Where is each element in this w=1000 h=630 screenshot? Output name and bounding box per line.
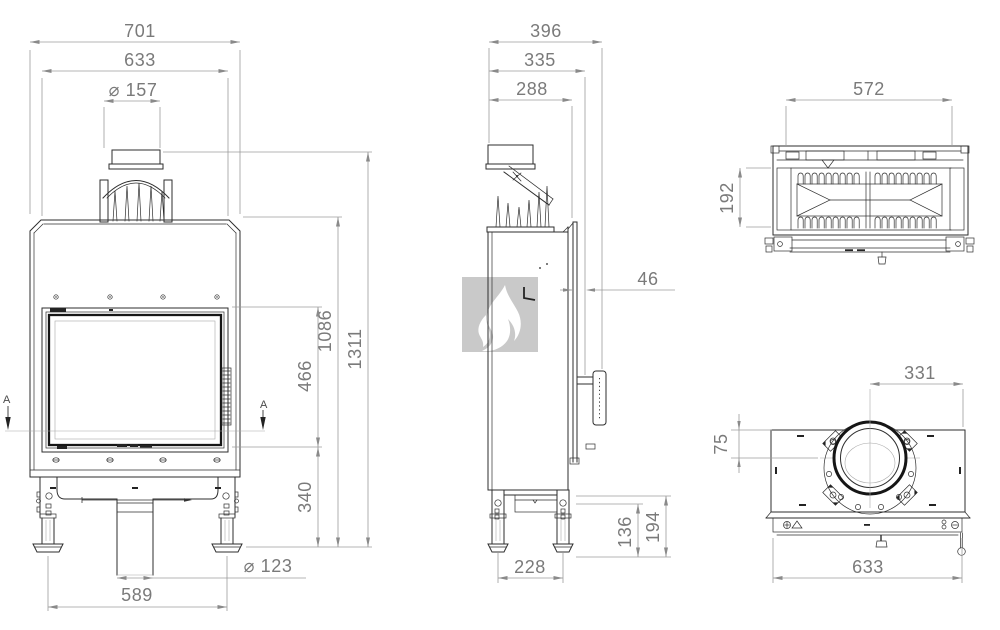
flue-collar-front: [100, 150, 172, 222]
door-handle-side: [577, 371, 606, 449]
front-edge-strip: [766, 512, 970, 555]
dim-flue-center-offset: 331: [904, 363, 936, 383]
louver-row-top: [798, 173, 936, 184]
section-aa-view: [765, 146, 974, 264]
flue-collar-side: [486, 145, 554, 232]
dim-feet-spacing: 589: [121, 585, 153, 605]
section-label-left: A: [3, 394, 11, 406]
louver-row-bottom: [798, 217, 936, 228]
dim-front-overall-width: 701: [124, 21, 156, 41]
dim-base-height: 340: [295, 481, 315, 513]
door-hinge-strip: [222, 368, 231, 425]
door-handle-top: [876, 541, 887, 547]
screw-row-bottom: [53, 458, 220, 462]
base-front: [30, 458, 242, 575]
screw-row-top: [54, 295, 219, 299]
adjustable-feet-front: [33, 514, 242, 552]
dim-top-body-width: 633: [852, 557, 884, 577]
section-label-right: A: [260, 399, 268, 411]
base-side: [488, 490, 573, 552]
flame-watermark: [462, 277, 538, 352]
dim-intake-diameter: ⌀ 123: [244, 556, 293, 576]
control-rod-knob: [958, 548, 966, 556]
dim-overall-depth: 396: [530, 21, 562, 41]
fireplace-dimension-drawing: 701 633 ⌀ 157 1311 1086 466 340 589 ⌀ 12…: [0, 0, 1000, 630]
dim-door-offset: 46: [637, 269, 658, 289]
body-front: [30, 220, 240, 477]
dim-flue-diameter: ⌀ 157: [109, 80, 158, 100]
body-side: [488, 227, 568, 490]
dim-base-outer-height: 194: [643, 511, 663, 543]
dim-base-inner-height: 136: [615, 516, 635, 548]
dim-glass-height: 466: [295, 360, 315, 392]
dim-section-inner-depth: 192: [717, 182, 737, 214]
top-view: [766, 422, 970, 555]
door-side: [568, 222, 579, 464]
dim-overall-height: 1311: [345, 328, 365, 369]
technical-drawing-page: 701 633 ⌀ 157 1311 1086 466 340 589 ⌀ 12…: [0, 0, 1000, 630]
right-wall-hatch: [950, 168, 964, 230]
dim-flue-edge-distance: 75: [711, 433, 731, 454]
left-wall-hatch: [777, 168, 791, 230]
dim-leg-spacing: 228: [514, 557, 546, 577]
dim-front-body-width: 633: [124, 50, 156, 70]
baffle-plate: [797, 184, 942, 216]
dim-firebox-depth: 288: [516, 79, 548, 99]
door-latch: [50, 308, 66, 312]
dim-body-depth: 335: [524, 50, 556, 70]
legs-front: [37, 477, 239, 517]
section-front-frame: [765, 237, 974, 264]
front-view: [30, 150, 242, 575]
air-intake-duct: [117, 499, 153, 575]
dim-section-inner-width: 572: [853, 79, 885, 99]
glass-door-front: [42, 308, 231, 452]
section-dimensions: 572 192: [717, 79, 952, 227]
